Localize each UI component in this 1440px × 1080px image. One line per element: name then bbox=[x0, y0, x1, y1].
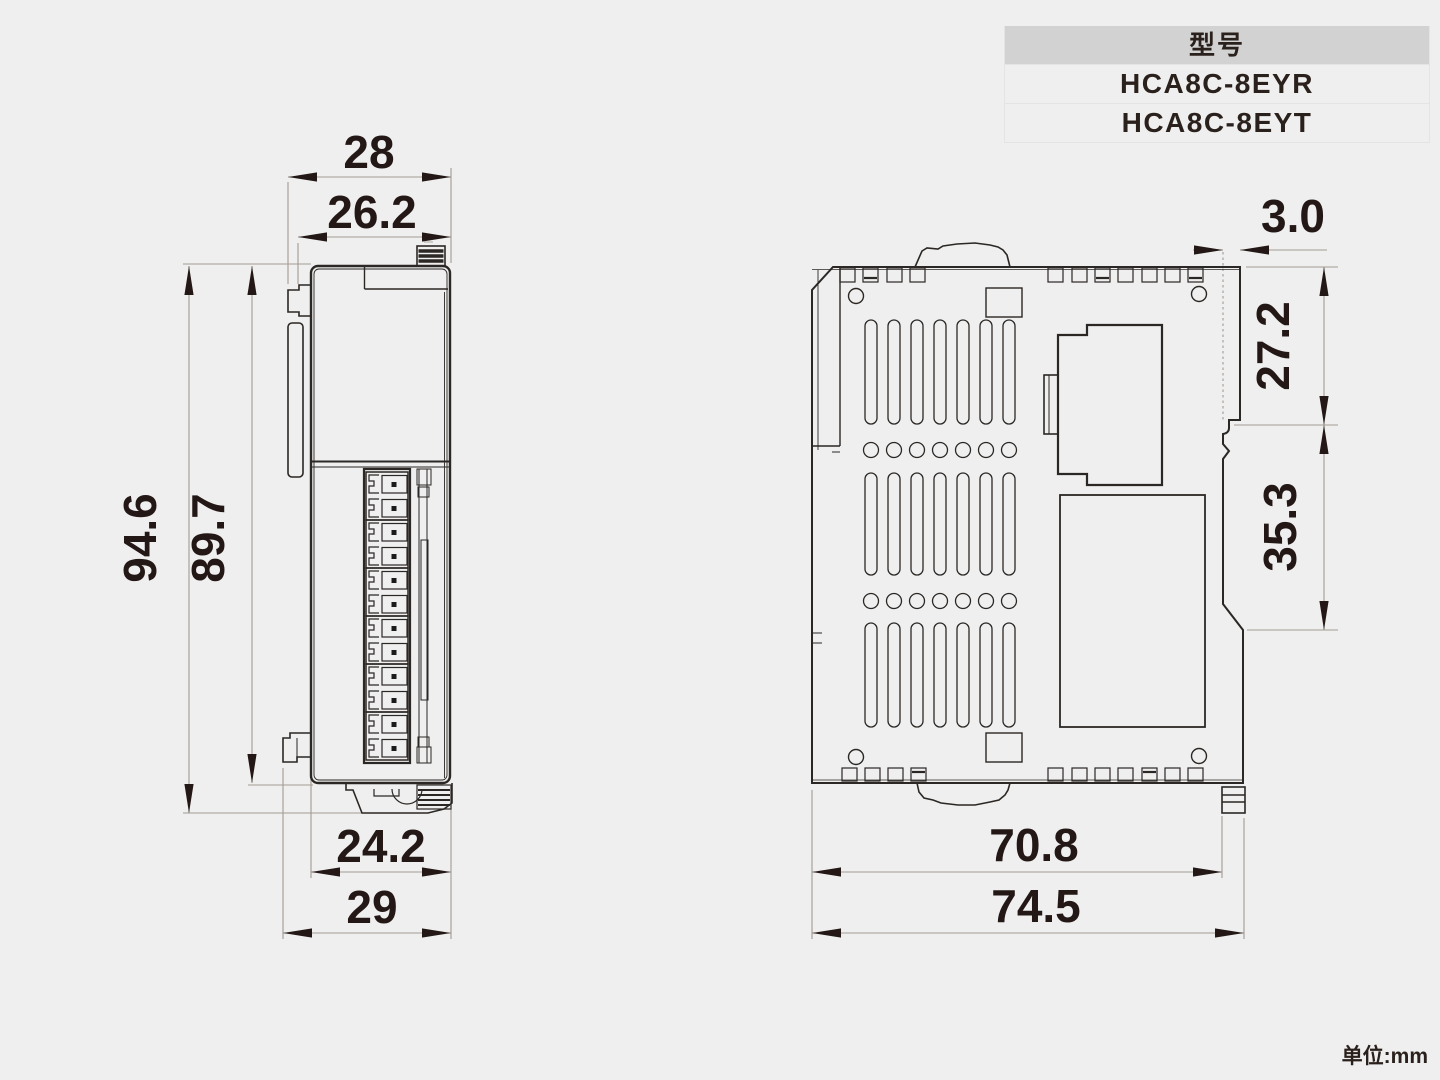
model-table-row: HCA8C-8EYT bbox=[1005, 103, 1429, 142]
dim-arrowhead bbox=[422, 928, 451, 937]
mount-hole bbox=[1192, 287, 1207, 302]
dim-side-rail-offset: 3.0 bbox=[1261, 190, 1325, 242]
front-bottom-tab bbox=[346, 783, 452, 813]
dim-arrowhead bbox=[422, 867, 451, 876]
dimension-drawing-page: 28 26.2 94.6 89.7 24.2 29 3.0 27.2 35.3 … bbox=[0, 0, 1440, 1080]
side-top-slot bbox=[986, 288, 1022, 317]
side-expansion-connector bbox=[1044, 325, 1162, 485]
side-top-bump bbox=[915, 243, 1010, 267]
front-view-drawing bbox=[283, 242, 452, 813]
dim-side-lower-depth: 35.3 bbox=[1254, 482, 1306, 572]
mount-hole bbox=[849, 750, 864, 765]
mount-hole bbox=[1192, 749, 1207, 764]
dim-arrowhead bbox=[1319, 425, 1328, 454]
front-body-outline bbox=[311, 266, 450, 783]
terminal-cover-hinge bbox=[417, 469, 431, 763]
dim-arrowhead bbox=[298, 232, 327, 241]
front-top-clip bbox=[288, 285, 311, 316]
dim-front-height-overall: 94.6 bbox=[114, 493, 166, 583]
dim-arrowhead bbox=[247, 754, 256, 783]
dim-arrowhead bbox=[184, 784, 193, 813]
dim-side-upper-depth: 27.2 bbox=[1247, 301, 1299, 391]
dim-arrowhead bbox=[1319, 267, 1328, 296]
side-bottom-bump bbox=[917, 783, 1010, 805]
side-label-plate bbox=[1060, 495, 1205, 727]
dim-arrowhead bbox=[1240, 245, 1269, 254]
dim-arrowhead bbox=[1193, 867, 1222, 876]
model-table-row: HCA8C-8EYR bbox=[1005, 64, 1429, 103]
front-top-connector bbox=[417, 242, 445, 266]
technical-drawing: 28 26.2 94.6 89.7 24.2 29 3.0 27.2 35.3 … bbox=[0, 0, 1440, 1080]
dim-arrowhead bbox=[247, 266, 256, 295]
dim-arrowhead bbox=[283, 928, 312, 937]
side-view-vents-and-teeth bbox=[840, 268, 1207, 781]
model-table-header: 型号 bbox=[1005, 26, 1429, 64]
dim-arrowhead bbox=[812, 928, 841, 937]
dimension-labels: 28 26.2 94.6 89.7 24.2 29 3.0 27.2 35.3 … bbox=[114, 126, 1325, 933]
side-bottom-foot bbox=[1222, 787, 1245, 813]
dim-arrowhead bbox=[1194, 245, 1223, 254]
dim-arrowhead bbox=[422, 172, 451, 181]
side-bottom-slot bbox=[986, 733, 1022, 762]
unit-note: 单位:mm bbox=[1280, 1040, 1428, 1070]
dim-front-depth-inner: 24.2 bbox=[336, 820, 426, 872]
dim-front-height-body: 89.7 bbox=[182, 493, 234, 583]
dim-arrowhead bbox=[184, 266, 193, 295]
dim-arrowhead bbox=[1215, 928, 1244, 937]
dim-front-width-overall: 28 bbox=[343, 126, 394, 178]
mount-hole bbox=[849, 289, 864, 304]
dim-side-width-overall: 74.5 bbox=[991, 880, 1081, 932]
dim-arrowhead bbox=[288, 172, 317, 181]
dim-side-width-inner: 70.8 bbox=[989, 819, 1079, 871]
dim-arrowhead bbox=[422, 232, 451, 241]
dim-front-depth-overall: 29 bbox=[346, 881, 397, 933]
model-table: 型号 HCA8C-8EYR HCA8C-8EYT bbox=[1004, 26, 1430, 143]
dim-front-width-body: 26.2 bbox=[327, 186, 417, 238]
dim-arrowhead bbox=[812, 867, 841, 876]
dim-arrowhead bbox=[1319, 396, 1328, 425]
terminal-block-units bbox=[366, 472, 408, 760]
dim-arrowhead bbox=[1319, 601, 1328, 630]
front-side-panel bbox=[288, 323, 303, 477]
